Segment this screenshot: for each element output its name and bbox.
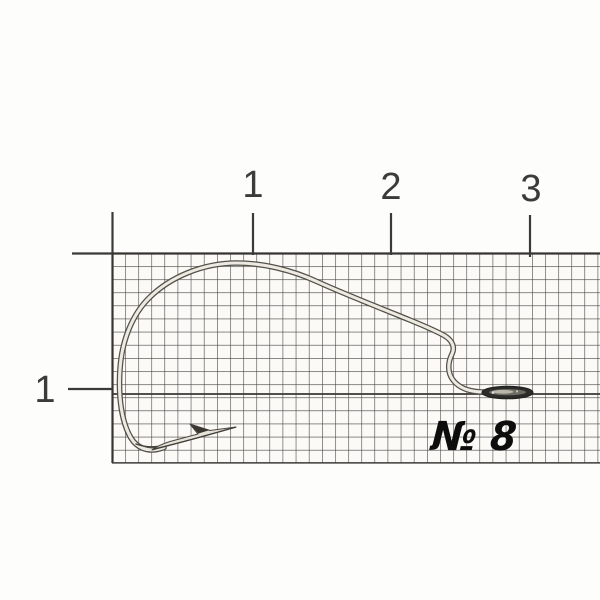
grid-lines (112, 253, 600, 463)
ruler-label-top-1: 1 (242, 166, 263, 204)
measurement-grid (112, 253, 600, 463)
hook-eye (482, 386, 533, 399)
product-photo: 1 2 3 1 № 8 (0, 0, 600, 600)
ruler-label-top-2: 2 (380, 168, 401, 206)
ruler-label-top-3: 3 (520, 170, 541, 208)
graph-paper-and-hook-image (0, 0, 600, 600)
hook-size-label: № 8 (430, 417, 518, 457)
ruler-label-left-1: 1 (34, 371, 55, 409)
